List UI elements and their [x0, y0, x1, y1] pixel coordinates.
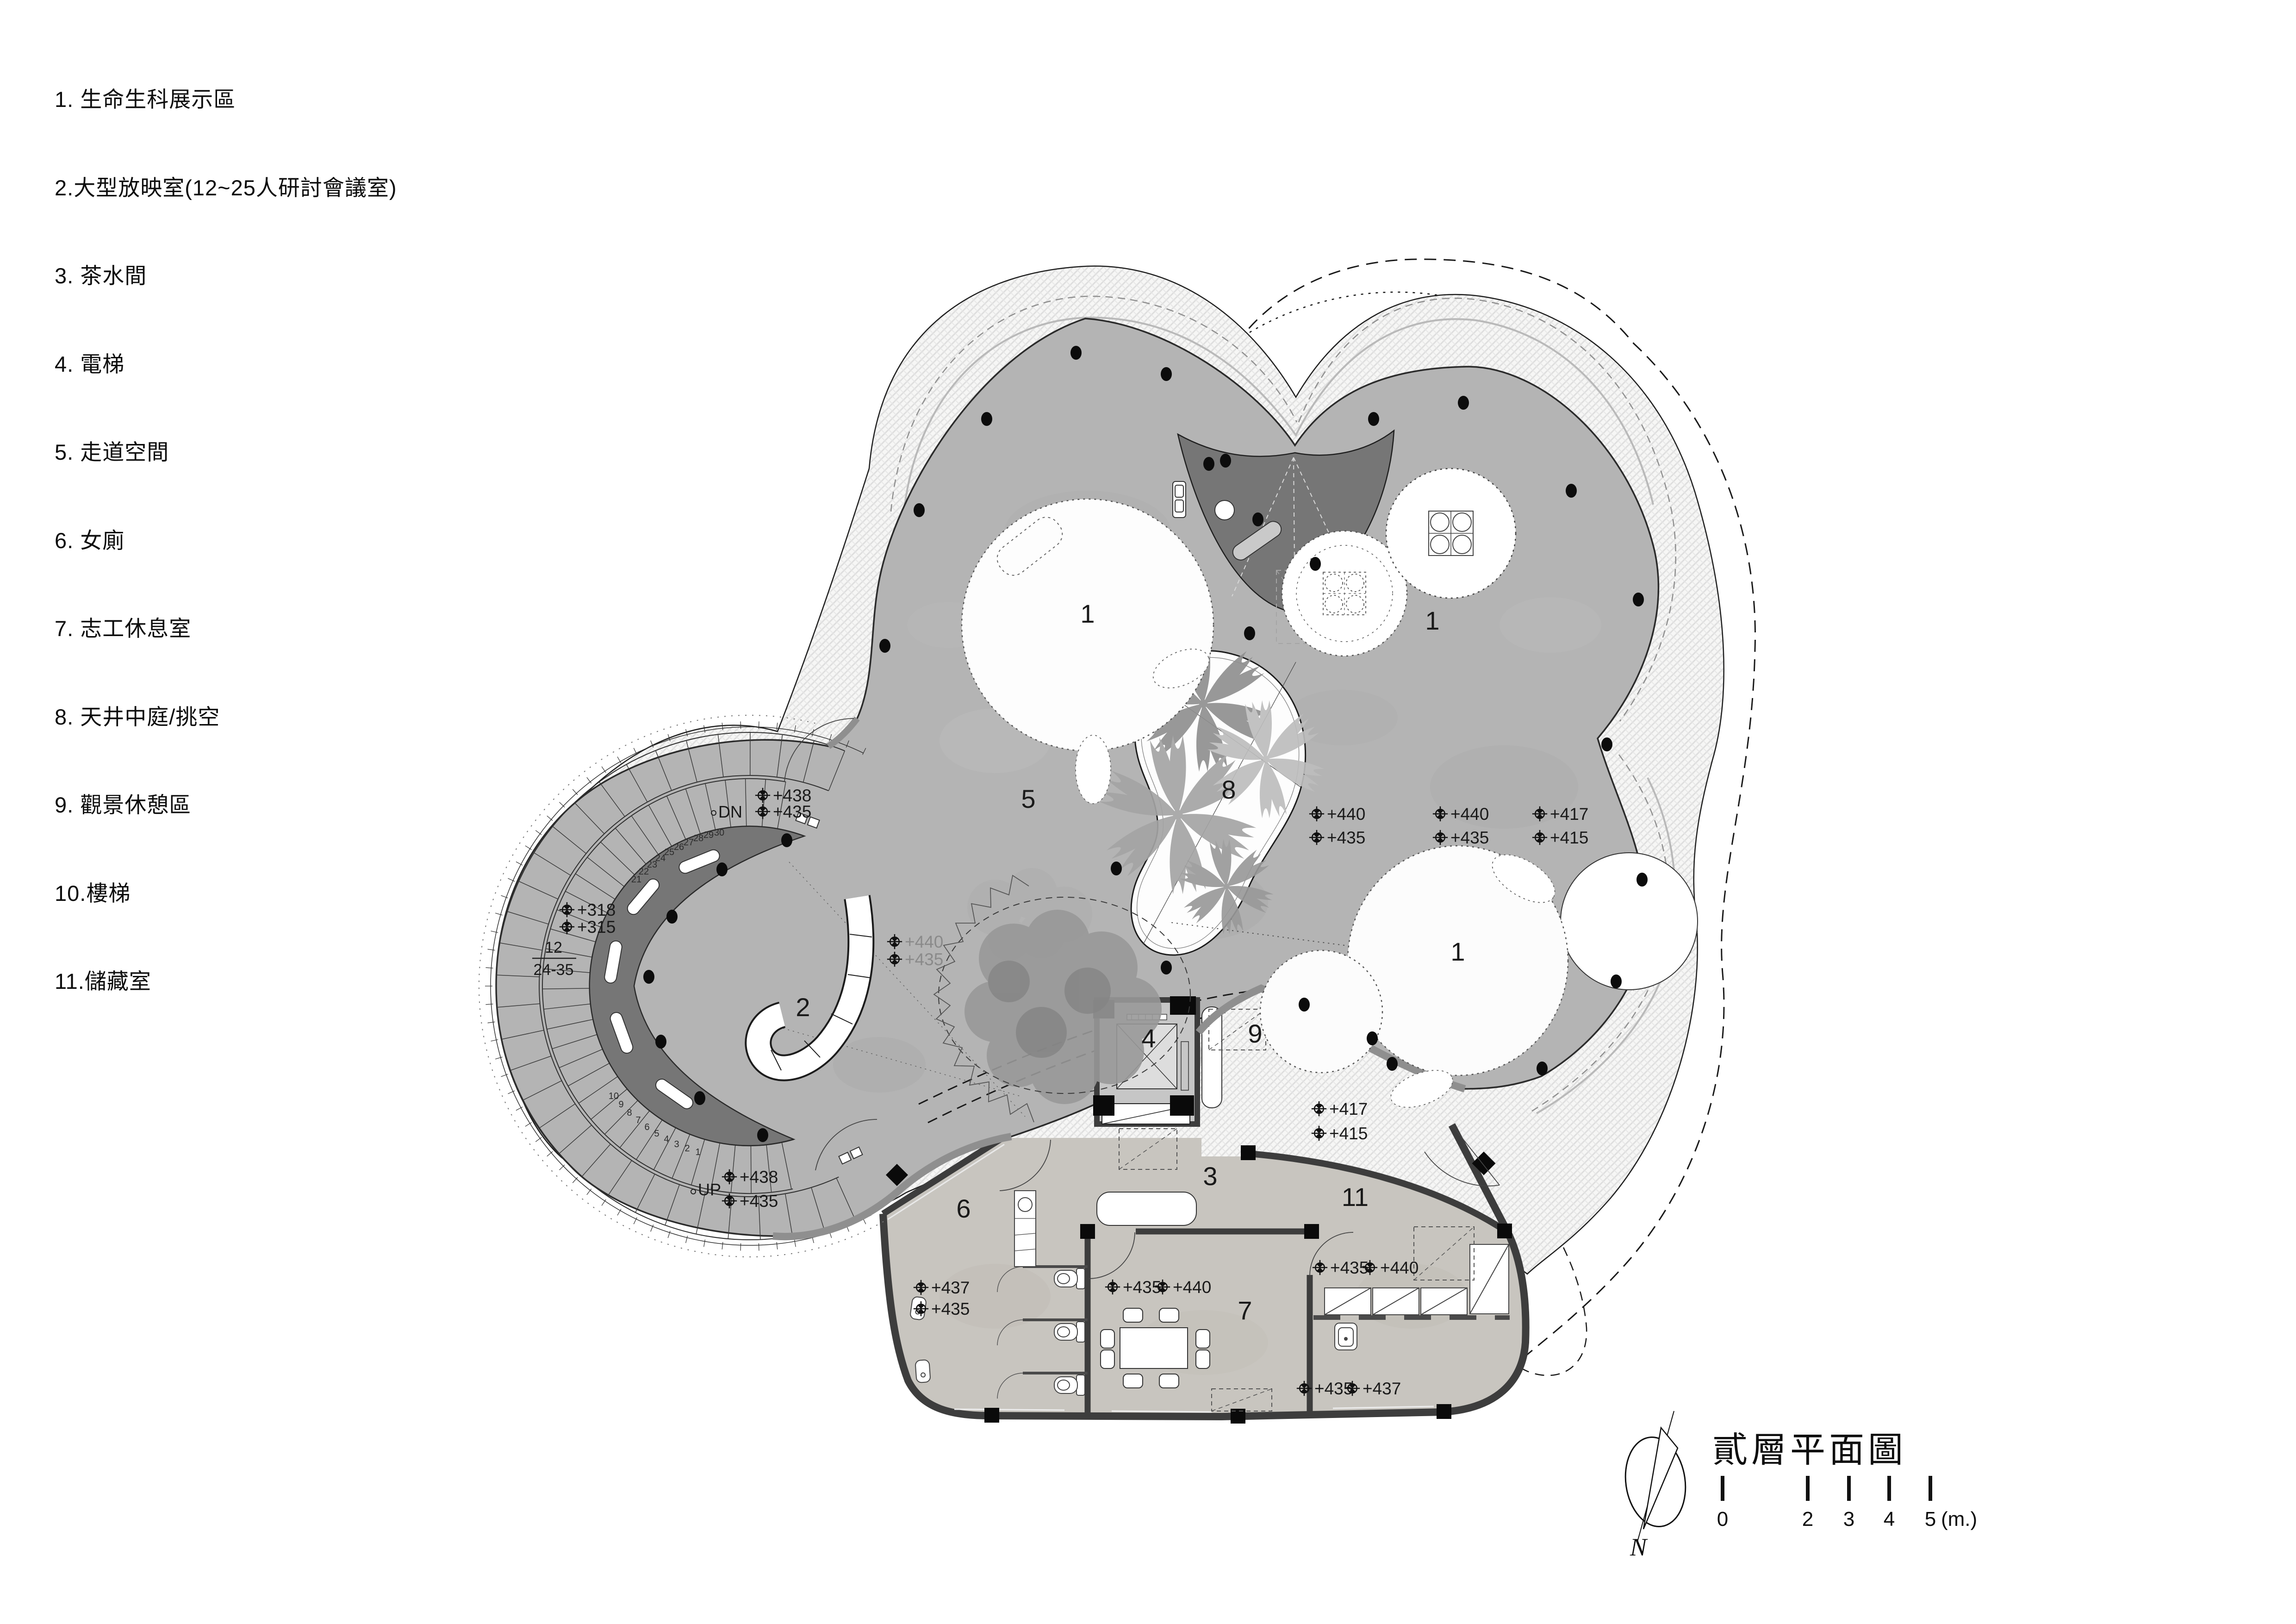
- wash-basin: [1014, 1191, 1036, 1267]
- column-dot: [1161, 961, 1172, 974]
- elevation-value: +435: [931, 1299, 970, 1318]
- north-arrow: N: [1620, 1411, 1691, 1561]
- stair-step-number: 6: [644, 1122, 649, 1132]
- toilet: [1054, 1268, 1085, 1289]
- elevation-value: +435: [773, 802, 811, 821]
- column-dot: [1111, 862, 1122, 875]
- scale-unit: (m.): [1941, 1508, 1977, 1530]
- elevation-value: +417: [1550, 805, 1588, 824]
- column-dot: [1387, 1057, 1398, 1071]
- elevation-value: +435: [1327, 828, 1365, 847]
- elevation-value: +415: [1329, 1124, 1368, 1143]
- column-dot: [1203, 457, 1214, 471]
- stair-step-number: 25: [664, 847, 674, 857]
- stair-step-number: 30: [714, 828, 724, 838]
- column-dot: [655, 1035, 666, 1049]
- column-dot: [1070, 346, 1082, 360]
- stair-step-number: 3: [674, 1139, 679, 1149]
- column-dot: [694, 1091, 705, 1105]
- elevation-value: +440: [1450, 805, 1489, 824]
- column-dot: [879, 639, 890, 653]
- stair-step-number: 4: [664, 1134, 669, 1144]
- elevation-value: +440: [1173, 1278, 1211, 1297]
- column-dot: [1252, 512, 1263, 526]
- scale-label: 0: [1717, 1508, 1728, 1530]
- stair-step-number: 10: [609, 1091, 619, 1101]
- elevation-value: +437: [1363, 1379, 1401, 1398]
- scale-label: 5: [1925, 1508, 1936, 1530]
- room-number-label: 7: [1238, 1296, 1252, 1325]
- column-dot: [781, 833, 792, 847]
- stair-note-upper: 12: [545, 939, 562, 956]
- sheet-title: 貳層平面圖: [1712, 1430, 1907, 1470]
- elevation-value: +437: [931, 1278, 970, 1297]
- toilet: [1054, 1322, 1085, 1342]
- column-dot: [1636, 873, 1648, 887]
- column-dot: [1244, 626, 1255, 640]
- room-number-label: 9: [1248, 1019, 1262, 1048]
- column-dot: [1299, 998, 1310, 1012]
- elevation-value: +318: [577, 900, 616, 919]
- column-dot: [1611, 974, 1622, 988]
- room-number-label: 8: [1221, 775, 1236, 804]
- elevation-value: +415: [1550, 828, 1588, 847]
- column-dot: [1601, 737, 1612, 751]
- column-dot: [914, 503, 925, 517]
- stair-step-number: 8: [627, 1108, 632, 1118]
- dn-label: DN: [718, 802, 742, 821]
- urinal: [915, 1360, 930, 1383]
- column-dot: [666, 910, 678, 924]
- column-dot: [1566, 484, 1577, 498]
- stair-step-number: 28: [693, 833, 703, 843]
- room-number-label: 1: [1080, 599, 1095, 628]
- column-dot: [1458, 396, 1469, 410]
- stair-step-number: 1: [695, 1147, 700, 1157]
- room-number-label: 2: [796, 993, 810, 1022]
- stair-step-number: 5: [654, 1129, 659, 1139]
- column-dot: [1310, 557, 1321, 571]
- room-number-label: 6: [956, 1194, 971, 1223]
- elevation-value: +440: [1380, 1258, 1419, 1277]
- stair-step-number: 29: [703, 830, 714, 840]
- floor-plan-drawing: 1234567891021222324252627282930 11123456…: [0, 0, 2296, 1624]
- elevation-value: +435: [740, 1192, 778, 1211]
- toilet: [1054, 1375, 1085, 1395]
- elevation-value: +440: [905, 932, 943, 951]
- column-dot: [757, 1128, 768, 1142]
- stair-step-number: 2: [684, 1143, 690, 1154]
- sink: [1335, 1323, 1357, 1350]
- stair-note-lower: 24-35: [534, 961, 574, 979]
- elevation-value: +315: [577, 918, 616, 937]
- stair-step-number: 27: [684, 837, 694, 848]
- tea-counter: [1097, 1192, 1196, 1225]
- stair-step-number: 26: [674, 842, 684, 852]
- room-number-label: 3: [1203, 1162, 1217, 1191]
- up-label: UP: [698, 1180, 721, 1199]
- column-dot: [981, 412, 992, 426]
- scale-bar: [1723, 1476, 1930, 1501]
- room-number-label: 1: [1450, 937, 1465, 966]
- column-dot: [1161, 367, 1172, 381]
- scale-label: 2: [1802, 1508, 1813, 1530]
- palm-circle-right: [1561, 853, 1698, 990]
- title-block: N 貳層平面圖 0 2 3 4 5 (m.): [1620, 1411, 1977, 1561]
- elevation-value: +440: [1327, 805, 1365, 824]
- column-dot: [716, 862, 728, 876]
- elevation-value: +417: [1329, 1099, 1368, 1118]
- column-dot: [1368, 412, 1379, 426]
- column-dot: [1633, 593, 1644, 606]
- room-number-label: 11: [1342, 1182, 1369, 1212]
- elevation-value: +435: [905, 950, 943, 969]
- stair-step-number: 7: [635, 1115, 641, 1125]
- scale-label: 3: [1843, 1508, 1854, 1530]
- column-dot: [1220, 454, 1231, 468]
- stair-step-number: 9: [618, 1099, 623, 1110]
- elevation-value: +435: [1450, 828, 1489, 847]
- column-dot: [643, 970, 654, 984]
- north-label: N: [1630, 1533, 1648, 1561]
- scale-label: 4: [1884, 1508, 1895, 1530]
- room-number-label: 5: [1021, 784, 1035, 813]
- elevation-value: +438: [740, 1168, 778, 1187]
- column-dot: [1367, 1031, 1378, 1045]
- room-number-label: 4: [1141, 1024, 1156, 1053]
- floor-plan-sheet: 1. 生命生科展示區 2.大型放映室(12~25人研討會議室) 3. 茶水間 4…: [0, 0, 2296, 1624]
- column-dot: [1537, 1062, 1548, 1075]
- room-number-label: 1: [1425, 606, 1439, 635]
